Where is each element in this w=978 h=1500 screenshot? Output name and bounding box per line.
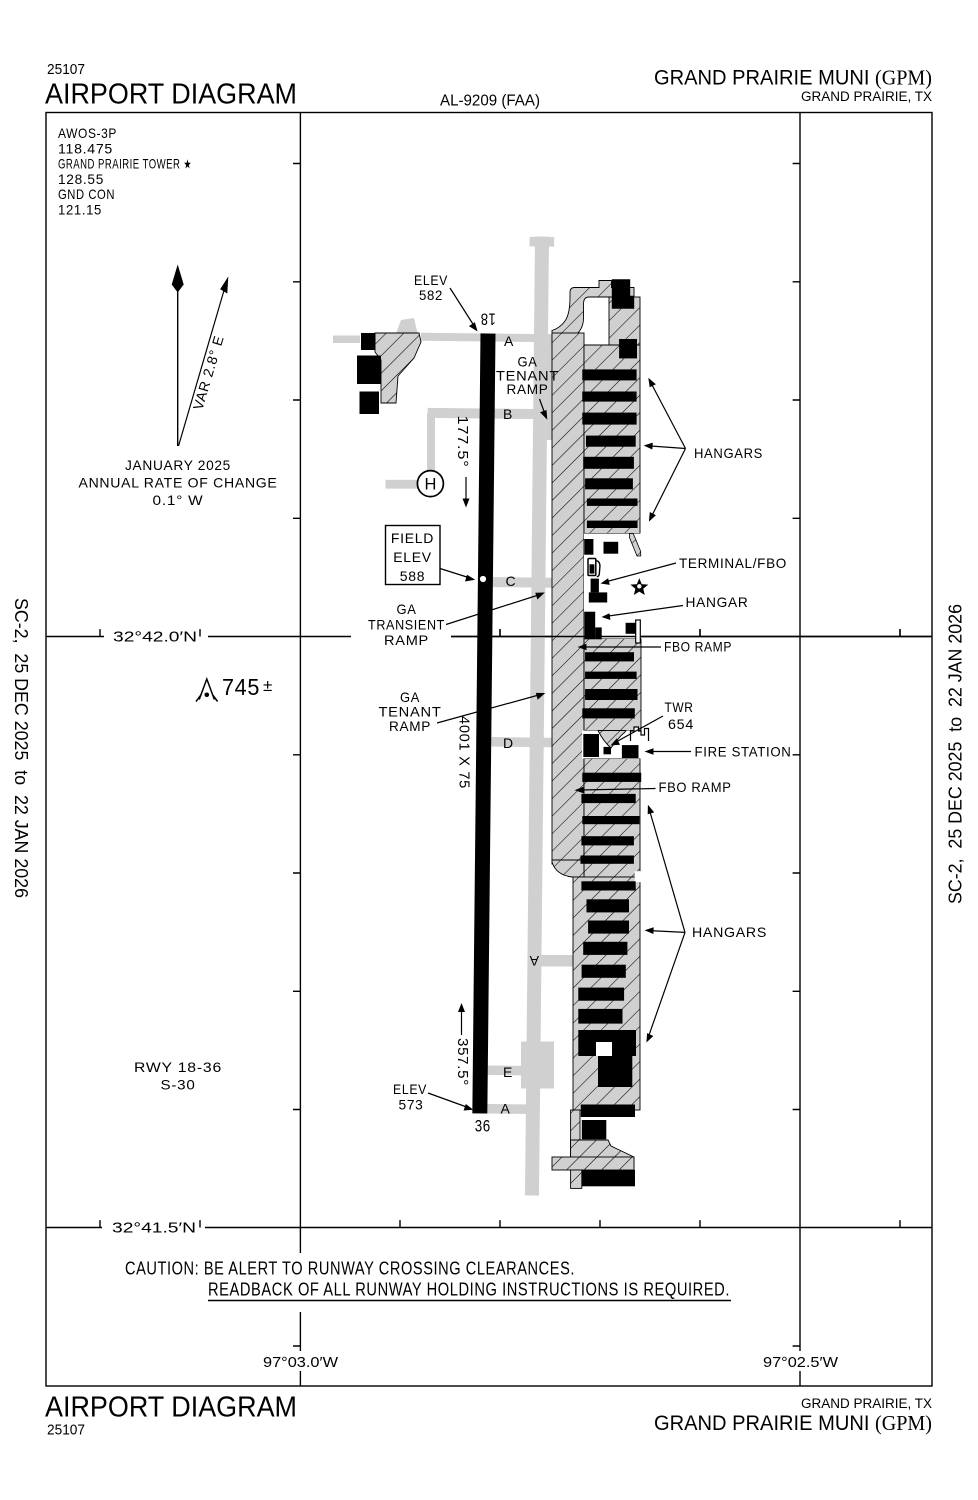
svg-text:RWY 18-36: RWY 18-36 — [134, 1059, 222, 1075]
svg-text:25107: 25107 — [47, 62, 85, 78]
svg-text:128.55: 128.55 — [58, 171, 104, 187]
svg-text:AIRPORT DIAGRAM: AIRPORT DIAGRAM — [45, 79, 297, 111]
svg-text:36: 36 — [475, 1117, 491, 1136]
svg-text:SC-2, 25 DEC 2025 to 22 JAN: SC-2, 25 DEC 2025 to 22 JAN 2026 — [945, 604, 966, 904]
svg-text:118.475: 118.475 — [58, 140, 113, 156]
svg-text:121.15: 121.15 — [58, 202, 102, 218]
svg-text:ELEV: ELEV — [393, 549, 432, 565]
svg-text:25107: 25107 — [47, 1423, 85, 1439]
svg-text:JANUARY 2025: JANUARY 2025 — [125, 457, 231, 473]
svg-text:D: D — [503, 735, 514, 751]
svg-text:FIRE STATION: FIRE STATION — [695, 744, 792, 760]
svg-text:ANNUAL RATE OF CHANGE: ANNUAL RATE OF CHANGE — [79, 475, 278, 491]
svg-text:HANGARS: HANGARS — [694, 445, 763, 461]
svg-text:177.5°: 177.5° — [454, 416, 471, 468]
svg-text:CAUTION: BE ALERT TO RUNWAY CR: CAUTION: BE ALERT TO RUNWAY CROSSING CLE… — [125, 1259, 575, 1279]
svg-text:GRAND PRAIRIE, TX: GRAND PRAIRIE, TX — [801, 89, 932, 104]
svg-text:GND CON: GND CON — [58, 186, 115, 202]
svg-text:RAMP: RAMP — [389, 718, 431, 734]
svg-text:A: A — [529, 953, 539, 969]
svg-text:READBACK OF ALL RUNWAY HOLDING: READBACK OF ALL RUNWAY HOLDING INSTRUCTI… — [208, 1280, 730, 1300]
svg-text:32°42.0′N: 32°42.0′N — [113, 629, 197, 646]
svg-text:A: A — [501, 1101, 511, 1117]
svg-text:RAMP: RAMP — [507, 381, 549, 397]
svg-text:4001 X 75: 4001 X 75 — [456, 716, 473, 789]
svg-text:S-30: S-30 — [161, 1077, 196, 1093]
svg-text:745: 745 — [222, 674, 260, 700]
svg-text:97°03.0′W: 97°03.0′W — [263, 1354, 339, 1371]
svg-text:AL-9209 (FAA): AL-9209 (FAA) — [440, 93, 540, 110]
svg-text:SC-2, 25 DEC 2025 to 22 JAN: SC-2, 25 DEC 2025 to 22 JAN 2026 — [11, 598, 32, 898]
svg-text:654: 654 — [668, 716, 694, 732]
svg-text:H: H — [424, 476, 436, 494]
svg-text:HANGARS: HANGARS — [692, 924, 767, 940]
svg-text:FIELD: FIELD — [391, 530, 434, 546]
svg-text:0.1° W: 0.1° W — [153, 492, 204, 508]
svg-text:588: 588 — [400, 568, 425, 584]
svg-text:573: 573 — [399, 1097, 424, 1113]
svg-text:FBO RAMP: FBO RAMP — [659, 779, 732, 795]
svg-text:AIRPORT DIAGRAM: AIRPORT DIAGRAM — [45, 1392, 297, 1424]
svg-text:±: ± — [263, 676, 273, 695]
svg-text:C: C — [506, 573, 517, 589]
svg-text:RAMP: RAMP — [384, 632, 429, 648]
svg-text:97°02.5′W: 97°02.5′W — [763, 1354, 839, 1371]
svg-text:GRAND PRAIRIE MUNI (GPM): GRAND PRAIRIE MUNI (GPM) — [654, 1411, 932, 1435]
svg-text:357.5°: 357.5° — [454, 1038, 471, 1086]
svg-text:32°41.5′N: 32°41.5′N — [112, 1220, 196, 1237]
svg-text:AWOS-3P: AWOS-3P — [58, 125, 117, 141]
svg-text:GA: GA — [397, 601, 417, 617]
svg-text:E: E — [503, 1064, 513, 1080]
svg-text:A: A — [504, 333, 514, 349]
svg-text:HANGAR: HANGAR — [686, 594, 749, 610]
svg-text:ELEV: ELEV — [414, 272, 448, 288]
svg-text:18: 18 — [480, 310, 496, 329]
svg-text:TWR: TWR — [665, 699, 694, 715]
svg-text:GRAND PRAIRIE TOWER ★: GRAND PRAIRIE TOWER ★ — [58, 156, 192, 172]
svg-text:GRAND PRAIRIE, TX: GRAND PRAIRIE, TX — [801, 1396, 932, 1411]
svg-text:B: B — [503, 406, 513, 422]
svg-text:FBO RAMP: FBO RAMP — [664, 639, 732, 655]
svg-text:TERMINAL/FBO: TERMINAL/FBO — [679, 555, 787, 571]
svg-text:ELEV: ELEV — [393, 1081, 427, 1097]
svg-text:GRAND PRAIRIE MUNI (GPM): GRAND PRAIRIE MUNI (GPM) — [654, 66, 932, 90]
svg-text:TRANSIENT: TRANSIENT — [368, 617, 445, 633]
svg-text:582: 582 — [419, 287, 443, 303]
